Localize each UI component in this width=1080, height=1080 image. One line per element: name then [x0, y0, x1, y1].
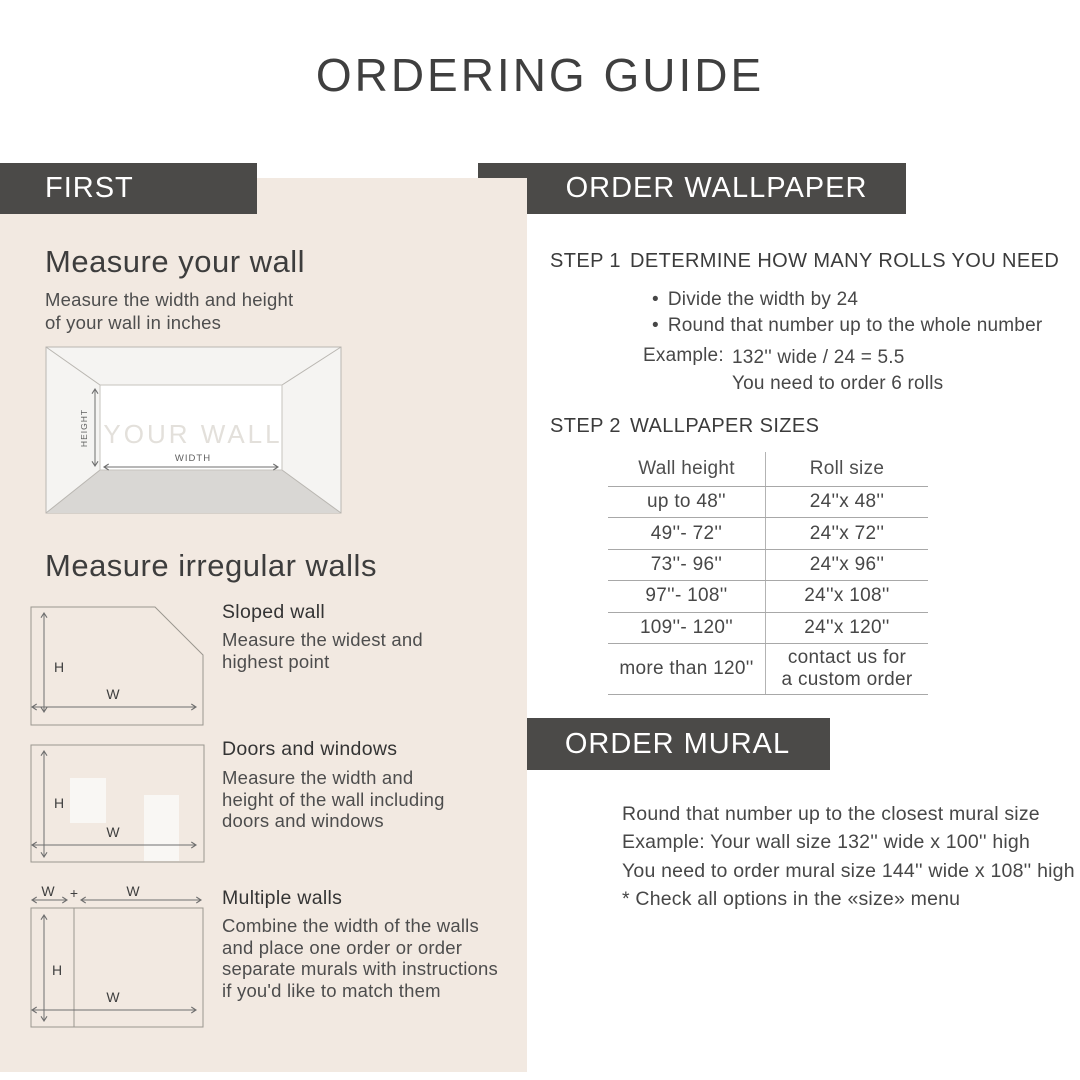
example-line: 132'' wide / 24 = 5.5	[732, 345, 943, 371]
mural-line: * Check all options in the «size» menu	[622, 885, 1075, 913]
first-panel: Measure your wall Measure the width and …	[0, 178, 527, 1072]
mural-line: Example: Your wall size 132'' wide x 100…	[622, 828, 1075, 856]
w-label: W	[106, 989, 120, 1005]
bullet-text: Divide the width by 24	[668, 287, 858, 313]
example-lines: 132'' wide / 24 = 5.5 You need to order …	[732, 345, 943, 396]
your-wall-label: YOUR WALL	[103, 419, 282, 449]
wall-height-cell: 97''- 108''	[608, 581, 766, 611]
h-label: H	[54, 795, 64, 811]
wallpaper-size-table: Wall height Roll size up to 48'' 24''x 4…	[608, 452, 928, 695]
step1-bullets: • Divide the width by 24 • Round that nu…	[652, 287, 1042, 338]
first-header-bar: FIRST	[0, 163, 257, 214]
wall-height-cell: up to 48''	[608, 487, 766, 517]
h-label: H	[52, 962, 62, 978]
bullet-item: • Round that number up to the whole numb…	[652, 313, 1042, 339]
w-label: W	[106, 686, 120, 702]
measure-wall-body: Measure the width and height of your wal…	[45, 288, 293, 334]
sloped-wall-body: Measure the widest and highest point	[222, 629, 423, 672]
w-label: W	[41, 885, 55, 899]
column-header: Wall height	[608, 452, 766, 486]
multiple-walls-diagram: W + W H W	[30, 885, 206, 1037]
bullet-dot: •	[652, 313, 659, 339]
table-row: up to 48'' 24''x 48''	[608, 486, 928, 517]
step1-heading: DETERMINE HOW MANY ROLLS YOU NEED	[630, 250, 1059, 273]
wall-height-cell: 73''- 96''	[608, 550, 766, 580]
mural-line: You need to order mural size 144'' wide …	[622, 857, 1075, 885]
step1-example: Example: 132'' wide / 24 = 5.5 You need …	[643, 345, 943, 396]
wall-diagram: YOUR WALL HEIGHT WIDTH	[45, 345, 342, 515]
w-label: W	[106, 824, 120, 840]
step2-heading: WALLPAPER SIZES	[630, 415, 819, 438]
doors-windows-title: Doors and windows	[222, 738, 397, 761]
table-row: 49''- 72'' 24''x 72''	[608, 517, 928, 548]
ordering-guide-page: ORDERING GUIDE FIRST ORDER WALLPAPER ORD…	[0, 0, 1080, 1080]
step1-section: STEP 1 DETERMINE HOW MANY ROLLS YOU NEED	[550, 250, 1059, 273]
sloped-wall-diagram: H W	[30, 603, 206, 728]
wall-height-cell: 109''- 120''	[608, 613, 766, 643]
bullet-item: • Divide the width by 24	[652, 287, 1042, 313]
sloped-wall-title: Sloped wall	[222, 601, 325, 624]
step2-label: STEP 2	[550, 415, 630, 438]
page-title: ORDERING GUIDE	[0, 48, 1080, 102]
wall-height-cell: more than 120''	[608, 644, 766, 694]
step1-label: STEP 1	[550, 250, 630, 273]
table-row: 73''- 96'' 24''x 96''	[608, 549, 928, 580]
irregular-walls-heading: Measure irregular walls	[45, 548, 377, 584]
table-row: 109''- 120'' 24''x 120''	[608, 612, 928, 643]
mural-line: Round that number up to the closest mura…	[622, 800, 1075, 828]
example-label: Example:	[643, 345, 732, 396]
h-label: H	[54, 659, 64, 675]
width-label: WIDTH	[175, 453, 211, 464]
step2-section: STEP 2 WALLPAPER SIZES	[550, 415, 819, 438]
roll-size-cell: 24''x 72''	[766, 518, 928, 548]
height-label: HEIGHT	[79, 409, 89, 447]
wall-height-cell: 49''- 72''	[608, 518, 766, 548]
plus-sign: +	[70, 885, 78, 901]
table-row: more than 120'' contact us for a custom …	[608, 643, 928, 694]
multiple-walls-body: Combine the width of the walls and place…	[222, 915, 498, 1001]
mural-section: Round that number up to the closest mura…	[622, 800, 1075, 913]
bullet-dot: •	[652, 287, 659, 313]
doors-windows-body: Measure the width and height of the wall…	[222, 767, 445, 832]
roll-size-cell: 24''x 108''	[766, 581, 928, 611]
roll-size-cell: 24''x 120''	[766, 613, 928, 643]
roll-size-cell: 24''x 96''	[766, 550, 928, 580]
bullet-text: Round that number up to the whole number	[668, 313, 1043, 339]
order-mural-label: ORDER MURAL	[565, 728, 790, 761]
w-label: W	[126, 885, 140, 899]
order-wallpaper-label: ORDER WALLPAPER	[566, 172, 868, 205]
roll-size-cell: 24''x 48''	[766, 487, 928, 517]
measure-wall-heading: Measure your wall	[45, 244, 305, 280]
example-line: You need to order 6 rolls	[732, 371, 943, 397]
column-header: Roll size	[766, 452, 928, 486]
multiple-walls-title: Multiple walls	[222, 887, 342, 910]
first-header-label: FIRST	[45, 172, 134, 205]
order-mural-bar: ORDER MURAL	[525, 718, 830, 770]
table-row: 97''- 108'' 24''x 108''	[608, 580, 928, 611]
doors-windows-diagram: H W	[30, 744, 206, 863]
table-header-row: Wall height Roll size	[608, 452, 928, 486]
roll-size-cell: contact us for a custom order	[766, 644, 928, 694]
order-wallpaper-bar: ORDER WALLPAPER	[478, 163, 906, 214]
